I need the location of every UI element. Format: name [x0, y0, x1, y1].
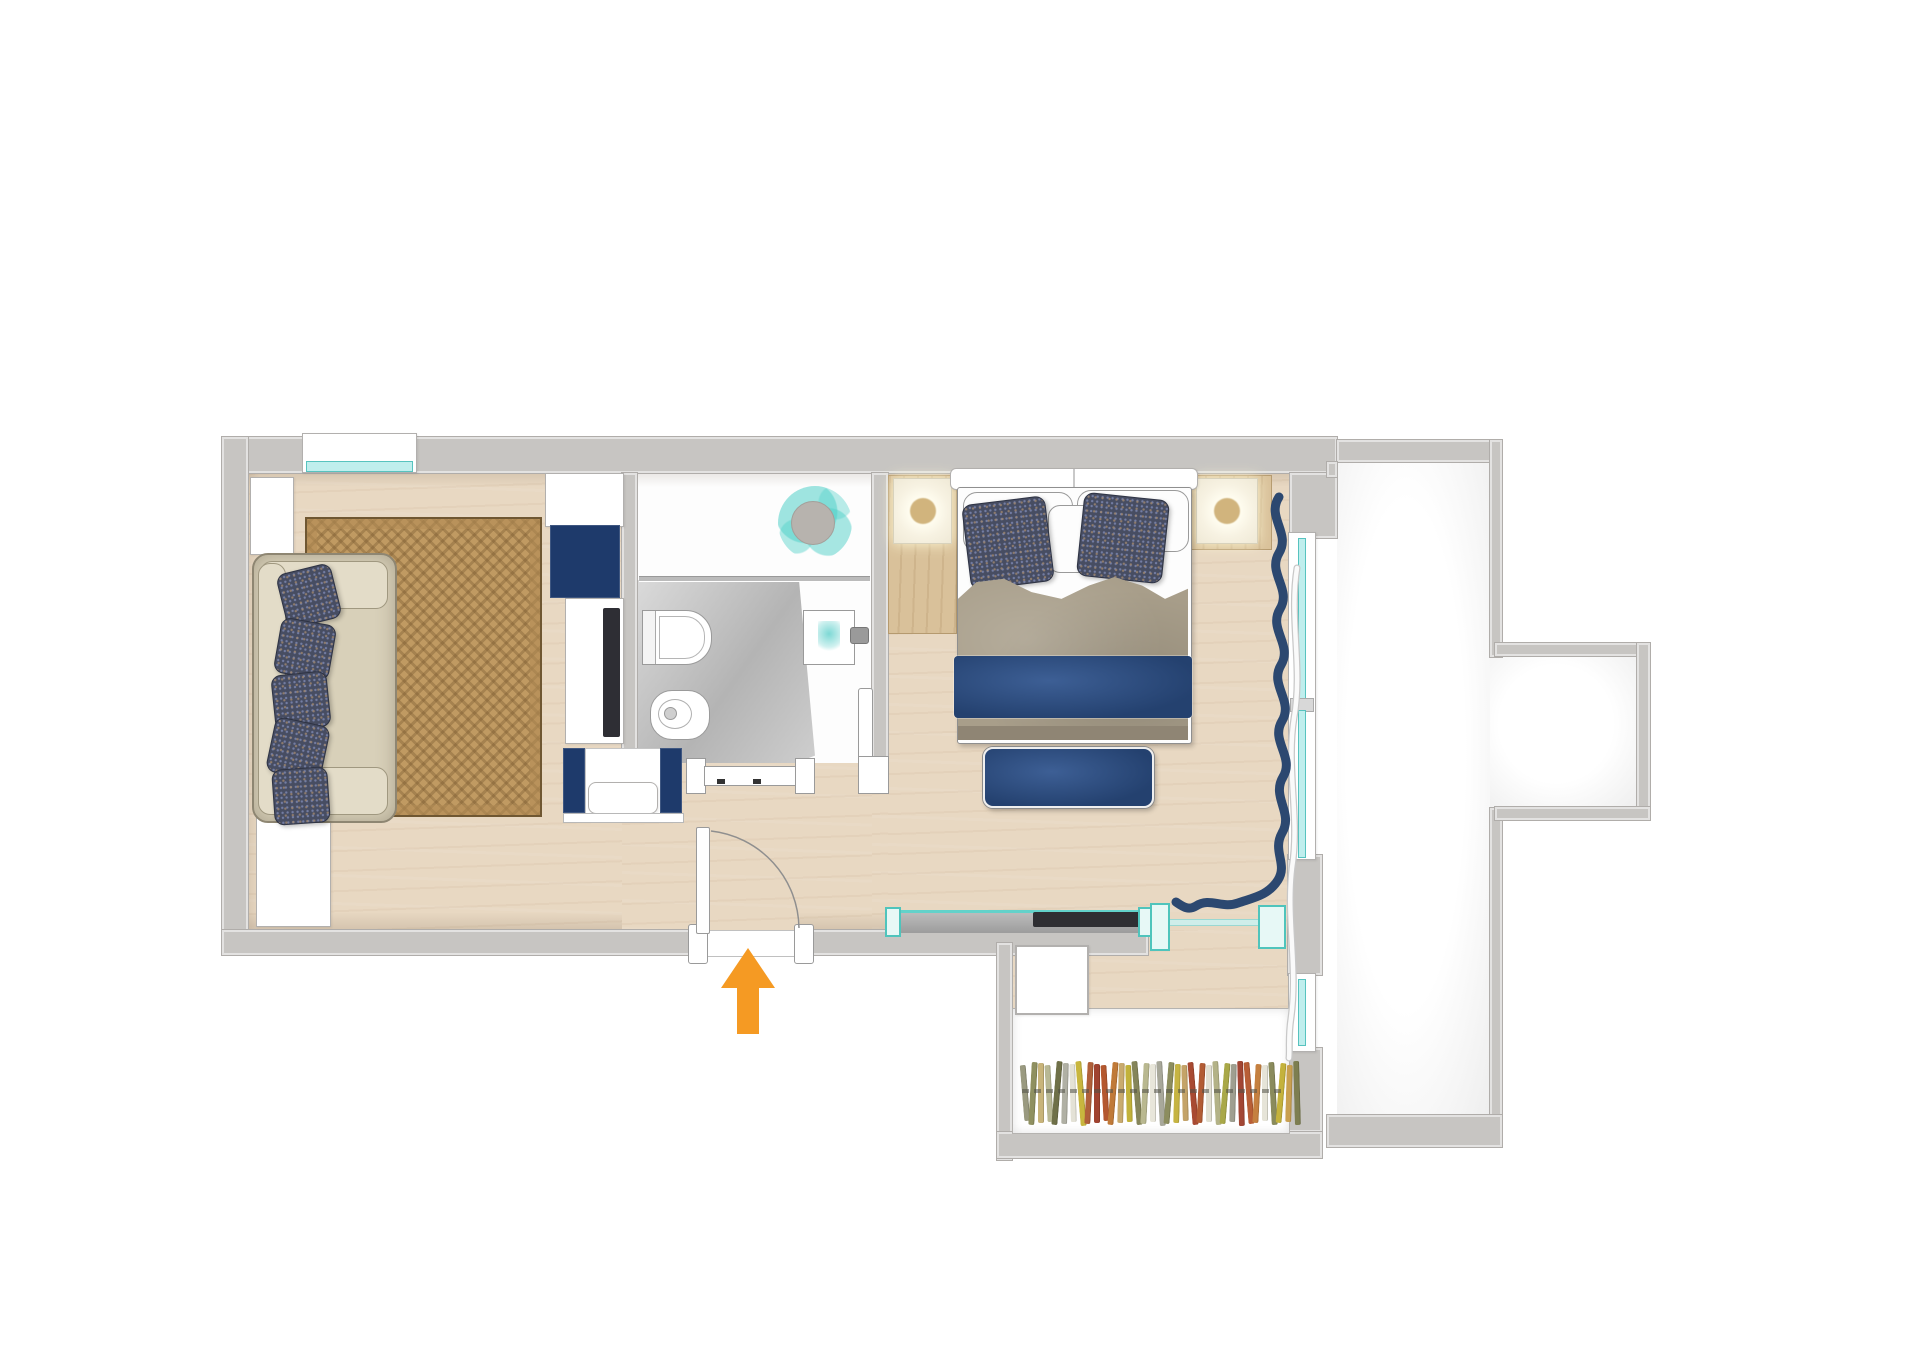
washbasin-faucet — [850, 627, 869, 644]
washbasin-water-icon — [818, 621, 840, 653]
lamp-bulb-icon — [1214, 498, 1240, 524]
entry-door-leaf — [696, 827, 710, 934]
console-left-wall-bottom — [256, 815, 331, 927]
bathroom-door-jamb-right — [795, 758, 815, 794]
clothes-item — [1252, 1063, 1261, 1122]
wall-partition-bath-bedroom — [872, 473, 888, 773]
wall-bump-bottom — [1495, 807, 1650, 820]
bed-blanket-foot — [958, 726, 1188, 740]
entry-jamb-right — [794, 924, 814, 964]
toilet-tank — [643, 611, 656, 664]
tv-screen-living — [603, 608, 620, 737]
clothes-item — [1262, 1065, 1268, 1121]
clothes-item — [1229, 1064, 1237, 1122]
dressing-door-post-left — [1150, 903, 1170, 951]
vanity-stool — [588, 782, 658, 814]
shower-drain-icon — [791, 501, 835, 545]
wardrobe-clothes — [1022, 1060, 1286, 1126]
clothes-item — [1117, 1063, 1125, 1123]
headboard-split — [1073, 469, 1075, 489]
entry-arrow-icon — [721, 948, 775, 988]
clothes-item — [1038, 1063, 1044, 1123]
bathroom-door-jamb-left — [686, 758, 706, 794]
door-hinge-mark — [753, 779, 761, 784]
wall-corner-column — [1290, 473, 1337, 538]
window-living-glass — [306, 461, 413, 472]
tv-screen-bedroom — [1033, 912, 1148, 927]
vanity-panel-right — [660, 748, 682, 813]
clothes-item — [1061, 1062, 1069, 1123]
toilet-bowl — [659, 616, 705, 659]
wall-bottom-mid — [800, 930, 1148, 955]
toilet — [642, 610, 712, 665]
dressing-door-rail — [1166, 919, 1260, 926]
structural-column — [1015, 945, 1089, 1015]
cabinet-navy-upper — [550, 525, 620, 598]
lamp-right — [1196, 478, 1258, 544]
wall-partition-living-bath — [622, 473, 637, 763]
window-bedroom-glass-upper — [1298, 538, 1306, 700]
sofa-pillow — [271, 766, 331, 826]
wardrobe-rail — [1022, 1089, 1286, 1093]
clothes-item — [1140, 1062, 1149, 1123]
lamp-bulb-icon — [910, 498, 936, 524]
dressing-door-post-right — [1258, 905, 1286, 949]
console-end-cap-left — [885, 907, 901, 937]
bed-accent-pillow-right — [1076, 492, 1170, 585]
clothes-item — [1084, 1062, 1093, 1124]
cabinet-white — [545, 473, 624, 527]
wall-dressing-left — [997, 943, 1012, 1160]
shower-glass-partition — [639, 576, 870, 582]
wall-balcony-right-lower — [1490, 808, 1502, 1147]
wall-left — [222, 437, 248, 955]
window-bedroom-glass-lower — [1298, 710, 1306, 858]
wall-dressing-bottom — [997, 1132, 1322, 1158]
console-left-wall-top — [250, 477, 294, 555]
wall-balcony-right-upper — [1490, 440, 1502, 657]
washbasin — [803, 610, 855, 665]
wall-bottom-left — [222, 930, 700, 955]
bidet-drain-icon — [664, 707, 677, 720]
partition-end-cap — [858, 756, 889, 794]
lamp-left — [893, 478, 952, 544]
bathroom-sliding-door — [704, 766, 797, 786]
vanity-panel-left — [563, 748, 585, 813]
door-hinge-mark — [717, 779, 725, 784]
clothes-item — [1173, 1063, 1181, 1122]
entry-arrow-shaft — [737, 986, 759, 1034]
wall-right-mid-block — [1288, 855, 1322, 975]
wall-balcony-top — [1337, 440, 1502, 462]
bidet — [650, 690, 710, 740]
clothes-item — [1206, 1065, 1212, 1122]
window-dressing-glass — [1298, 979, 1306, 1046]
bed-bench — [983, 747, 1154, 808]
bed-runner — [954, 656, 1192, 718]
balcony — [1337, 462, 1490, 1115]
wall-bump-right — [1637, 643, 1650, 820]
floor-plan-canvas — [0, 0, 1920, 1358]
wall-balcony-step — [1327, 462, 1337, 477]
clothes-item — [1094, 1064, 1100, 1123]
wall-balcony-bottom — [1327, 1115, 1502, 1147]
vanity-front-edge — [563, 813, 684, 823]
balcony-bump-out — [1490, 656, 1637, 807]
clothes-item — [1196, 1063, 1205, 1123]
bed-accent-pillow-left — [961, 495, 1055, 591]
clothes-item — [1028, 1061, 1038, 1124]
clothes-item — [1150, 1064, 1156, 1122]
wall-bump-top — [1495, 643, 1650, 656]
